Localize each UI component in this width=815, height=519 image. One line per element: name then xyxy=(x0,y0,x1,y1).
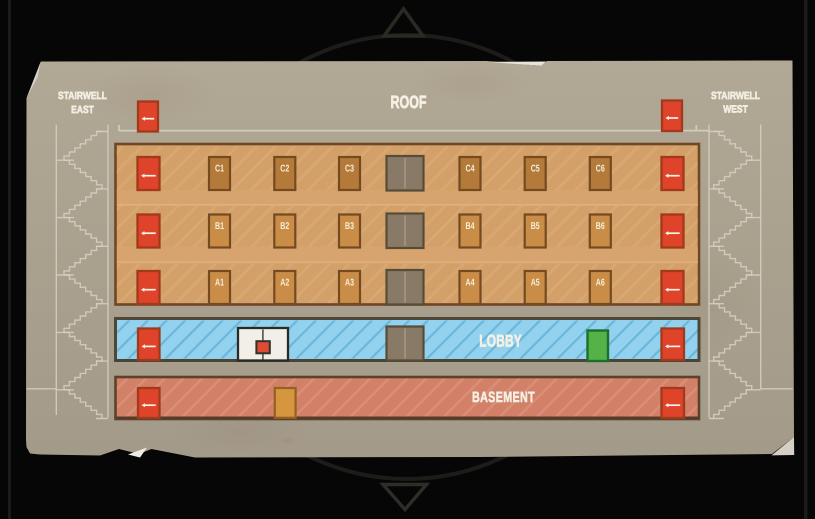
svg-text:WEST: WEST xyxy=(723,104,748,115)
svg-text:A4: A4 xyxy=(465,278,474,289)
svg-text:STAIRWELL: STAIRWELL xyxy=(58,91,107,102)
svg-text:EAST: EAST xyxy=(71,105,94,116)
svg-text:A6: A6 xyxy=(596,278,605,289)
svg-text:C2: C2 xyxy=(280,164,289,175)
svg-text:B5: B5 xyxy=(531,221,540,232)
svg-text:ROOF: ROOF xyxy=(391,92,427,112)
svg-text:B2: B2 xyxy=(280,221,289,232)
svg-text:STAIRWELL: STAIRWELL xyxy=(711,91,760,102)
svg-text:A1: A1 xyxy=(215,278,224,289)
svg-text:LOBBY: LOBBY xyxy=(479,332,522,351)
svg-text:C5: C5 xyxy=(531,164,540,175)
svg-text:A3: A3 xyxy=(345,278,354,289)
svg-text:C6: C6 xyxy=(596,164,605,175)
svg-text:B4: B4 xyxy=(465,221,474,232)
svg-text:BASEMENT: BASEMENT xyxy=(472,390,535,406)
svg-text:C1: C1 xyxy=(215,164,224,175)
svg-text:A5: A5 xyxy=(531,278,540,289)
svg-text:B1: B1 xyxy=(215,221,224,232)
svg-text:B3: B3 xyxy=(345,221,354,232)
svg-text:A2: A2 xyxy=(280,278,289,289)
svg-text:C3: C3 xyxy=(345,164,354,175)
svg-text:B6: B6 xyxy=(596,221,605,232)
svg-text:C4: C4 xyxy=(465,164,474,175)
